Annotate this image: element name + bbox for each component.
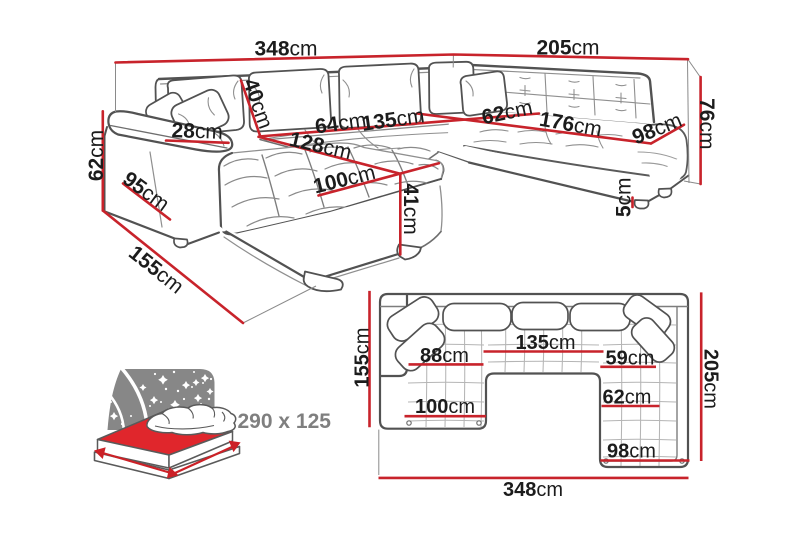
svg-text:135cm: 135cm	[515, 332, 575, 354]
svg-text:28cm: 28cm	[171, 119, 223, 144]
svg-text:348cm: 348cm	[503, 479, 563, 501]
svg-text:205cm: 205cm	[536, 37, 599, 60]
svg-text:290 x 125: 290 x 125	[238, 410, 332, 433]
svg-text:41cm: 41cm	[399, 183, 422, 234]
svg-text:348cm: 348cm	[254, 38, 317, 61]
svg-text:88cm: 88cm	[420, 345, 469, 367]
svg-text:76cm: 76cm	[695, 98, 718, 149]
svg-text:59cm: 59cm	[606, 347, 655, 369]
svg-text:100cm: 100cm	[415, 396, 475, 418]
svg-text:205cm: 205cm	[700, 349, 722, 409]
svg-text:98cm: 98cm	[607, 441, 656, 463]
svg-text:155cm: 155cm	[352, 328, 374, 388]
svg-text:62cm: 62cm	[85, 130, 108, 181]
svg-text:62cm: 62cm	[603, 387, 652, 409]
svg-text:5cm: 5cm	[613, 177, 636, 217]
